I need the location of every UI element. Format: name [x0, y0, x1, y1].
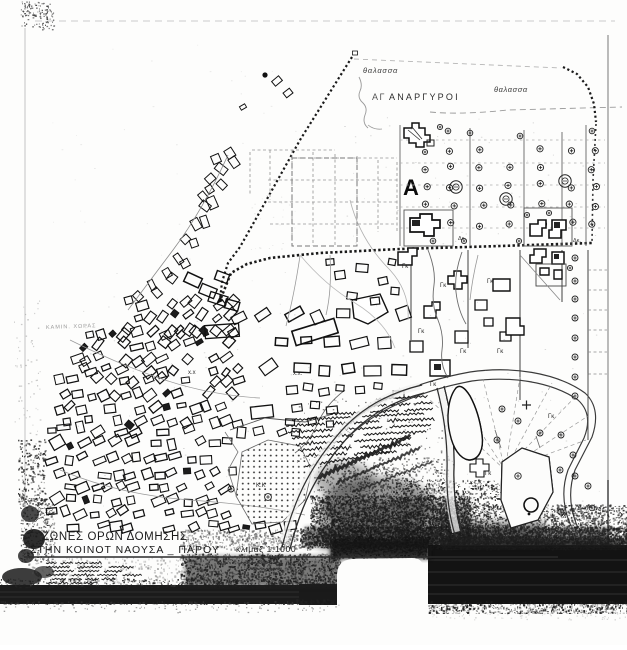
svg-text:A: A [403, 175, 419, 200]
svg-text:Γκ: Γκ [430, 382, 437, 388]
svg-text:κ Γ.Κ: κ Γ.Κ [470, 480, 482, 486]
svg-text:Γκ: Γκ [440, 283, 447, 289]
svg-text:Γκ: Γκ [418, 329, 425, 335]
svg-text:θαλασσα: θαλασσα [494, 85, 528, 94]
svg-text:Γκ: Γκ [485, 471, 492, 477]
svg-text:Κ.Κ: Κ.Κ [256, 483, 266, 489]
svg-text:θαλασσα: θαλασσα [363, 66, 398, 75]
svg-text:Γκ: Γκ [487, 279, 494, 285]
svg-text:ΖΩΝΕΣ ΟΡΩΝ ΔΟΜΗΣΗΣ: ΖΩΝΕΣ ΟΡΩΝ ΔΟΜΗΣΗΣ [42, 531, 188, 543]
svg-text:ΑΓ: ΑΓ [372, 92, 386, 102]
svg-text:Γκ: Γκ [460, 349, 467, 355]
svg-text:x.x: x.x [188, 370, 196, 376]
svg-text:Δκ.: Δκ. [573, 238, 581, 244]
svg-text:ΑΝΑΡΓΥΡΟΙ: ΑΝΑΡΓΥΡΟΙ [389, 92, 460, 102]
svg-text:κλιμαξ 1:1000: κλιμαξ 1:1000 [236, 544, 296, 554]
svg-text:Γκ: Γκ [402, 264, 409, 270]
svg-text:Γκ: Γκ [497, 349, 504, 355]
svg-text:ΣΤΗΝ ΚΟΙΝΟΤ ΝΑΟΥΣΑ _ ΠΑΡΟΥ: ΣΤΗΝ ΚΟΙΝΟΤ ΝΑΟΥΣΑ _ ΠΑΡΟΥ [30, 544, 220, 556]
